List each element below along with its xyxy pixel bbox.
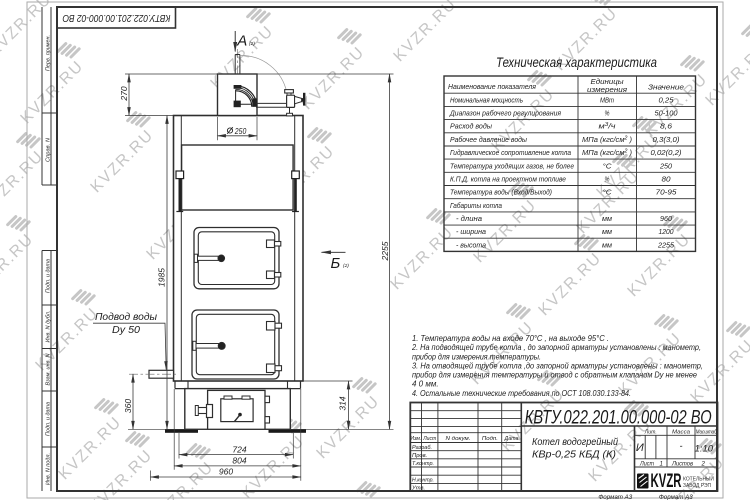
svg-text:80: 80 [662,175,671,184]
svg-text:2255: 2255 [380,241,390,261]
svg-text:Температура воды (Вход/Выход): Температура воды (Вход/Выход) [450,188,552,197]
svg-text:Подвод воды: Подвод воды [95,312,158,323]
svg-text:Температура уходящих газов, не: Температура уходящих газов, не более [450,161,574,170]
svg-text:Формат А3: Формат А3 [659,494,693,500]
svg-text:Диапазон рабочего регулировани: Диапазон рабочего регулирования [449,109,561,118]
svg-text:°С: °С [603,161,613,170]
svg-text:Справ. N: Справ. N [46,137,52,162]
svg-text:Изм.: Изм. [410,436,421,442]
svg-text:Подп. и дата: Подп. и дата [46,401,52,436]
svg-text:70-95: 70-95 [656,188,678,197]
svg-text:4 0 мм.: 4 0 мм. [412,380,439,389]
svg-text:1985: 1985 [157,268,167,287]
svg-text:1: 1 [660,461,663,468]
svg-text:Инв. N дубл.: Инв. N дубл. [46,311,52,343]
svg-text:%: % [605,175,610,184]
svg-text:МВт: МВт [600,95,614,104]
svg-text:Формат А3: Формат А3 [598,494,632,500]
svg-text:Котел водогрейный: Котел водогрейный [532,436,618,448]
svg-text:KVZR: KVZR [651,471,682,492]
svg-text:- длина: - длина [456,214,482,223]
svg-text:Перв. примен.: Перв. примен. [46,35,52,71]
svg-text:4. Остальные технические треб: 4. Остальные технические требования по О… [412,389,631,398]
svg-text:Дата: Дата [504,436,520,442]
svg-text:N докум.: N докум. [446,436,471,442]
svg-text:И: И [636,442,644,454]
svg-text:-: - [680,441,683,451]
svg-text:мм: мм [602,214,612,223]
svg-text:- ширина: - ширина [456,227,486,236]
svg-text:960: 960 [660,214,672,223]
svg-text:Габариты котла: Габариты котла [450,201,502,210]
svg-text:КВр-0,25 КБД (К): КВр-0,25 КБД (К) [532,449,616,461]
svg-text:250: 250 [659,161,672,170]
svg-text:0,02(0,2): 0,02(0,2) [651,148,682,157]
svg-text:1. Температура воды на входе: 1. Температура воды на входе 70°С , на в… [412,334,609,343]
svg-text:Рабочее давление воды: Рабочее давление воды [450,135,528,144]
svg-text:А: А [236,33,247,50]
svg-text:КВТУ.022.201.00.000-02 ВО: КВТУ.022.201.00.000-02 ВО [525,408,712,429]
svg-text:724: 724 [232,444,246,454]
svg-text:Гидравлическое сопротивление к: Гидравлическое сопротивление котла [450,148,571,157]
svg-text:8,6: 8,6 [660,122,672,131]
svg-text:Масса: Масса [672,429,691,435]
svg-text:Лит.: Лит. [644,429,657,435]
svg-text:- высота: - высота [456,240,486,249]
svg-text:Подп.: Подп. [482,436,498,442]
svg-text:1200: 1200 [659,227,674,236]
svg-text:1:10: 1:10 [695,444,714,455]
svg-text:измерения: измерения [587,85,627,94]
svg-text:КВТУ.022.201.00.000-02 ВО: КВТУ.022.201.00.000-02 ВО [62,12,170,23]
svg-text:м3/ч: м3/ч [599,122,616,131]
svg-text:Утв.: Утв. [411,486,425,492]
svg-text:%: % [605,109,610,118]
svg-text:МПа (кгс/см2 ): МПа (кгс/см2 ) [582,135,632,144]
svg-text:314: 314 [338,396,348,410]
svg-text:Подп. и дата: Подп. и дата [46,258,52,293]
svg-text:250: 250 [234,126,247,136]
svg-text:Б: Б [331,255,341,272]
svg-text:Т.контр.: Т.контр. [412,461,434,467]
svg-text:мм: мм [602,240,612,249]
svg-text:КОТЕЛЬНЫЙ: КОТЕЛЬНЫЙ [683,475,714,483]
svg-text:Инв. N подл.: Инв. N подл. [46,453,52,485]
svg-text:Взам. инв. N: Взам. инв. N [46,353,52,386]
svg-text:360: 360 [123,399,133,413]
svg-text:(2): (2) [249,41,255,47]
svg-text:Техническая характеристика: Техническая характеристика [496,54,657,70]
svg-text:ЗАВОД РЭП: ЗАВОД РЭП [683,483,711,489]
svg-text:804: 804 [232,455,246,465]
svg-text:Лист: Лист [422,436,436,442]
svg-text:прибор для измерения температу: прибор для измерения температуры и отвод… [412,371,698,380]
svg-text:Расход воды: Расход воды [450,122,493,131]
svg-text:2255: 2255 [657,240,675,249]
svg-text:мм: мм [602,227,612,236]
svg-text:270: 270 [119,86,129,101]
svg-text:Наименование показателя: Наименование показателя [448,82,536,91]
svg-text:Разраб.: Разраб. [412,445,432,451]
svg-text:Листов: Листов [671,461,694,468]
svg-text:Пров.: Пров. [412,453,427,459]
svg-text:К.П.Д. котла на проектном топл: К.П.Д. котла на проектном топливе [450,175,566,184]
svg-text:Лист: Лист [639,461,654,468]
svg-text:Масштаб: Масштаб [696,429,718,435]
svg-text:Н.контр.: Н.контр. [412,478,434,484]
svg-text:прибор для измерения температу: прибор для измерения температуры. [412,353,541,362]
svg-text:Номинальная мощность: Номинальная мощность [450,95,523,104]
svg-text:Dу 50: Dу 50 [112,325,140,336]
svg-text:°С: °С [603,188,613,197]
svg-text:3. На отводящей трубе котла ,: 3. На отводящей трубе котла ,до запорной… [412,361,703,370]
svg-text:0,25: 0,25 [659,95,675,104]
svg-text:(2): (2) [343,263,349,269]
svg-text:0,3(3,0): 0,3(3,0) [653,135,680,144]
svg-text:960: 960 [219,467,233,477]
svg-text:50-100: 50-100 [655,109,678,118]
svg-text:2: 2 [701,461,706,468]
svg-text:Значение: Значение [648,83,684,92]
svg-text:2. На подводящей трубе котла: 2. На подводящей трубе котла , до запорн… [411,343,701,352]
